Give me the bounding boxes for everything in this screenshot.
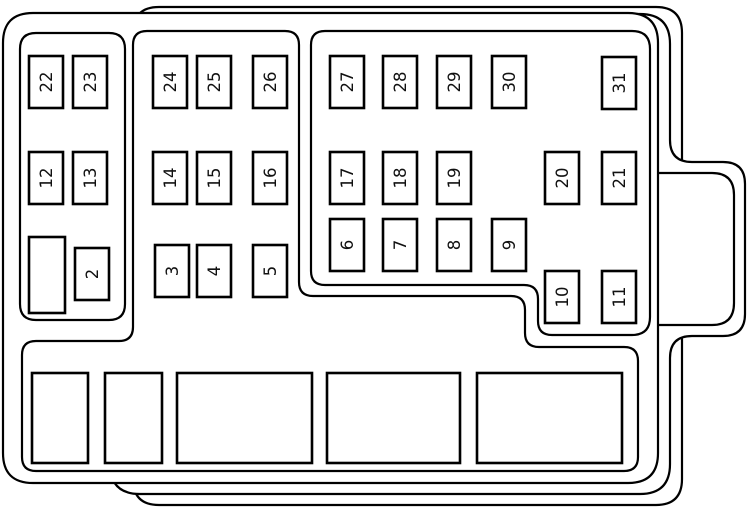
fuse-slot-25: 25 <box>197 56 231 108</box>
fuse-number-label: 28 <box>391 72 410 93</box>
fuse-number-label: 8 <box>445 240 464 251</box>
fuse-slot-31: 31 <box>602 57 636 109</box>
fuse-number-label: 16 <box>261 168 280 189</box>
fuse-slot-20: 20 <box>545 152 579 204</box>
fuse-box-diagram-canvas: 2345678910111213141516171819202122232425… <box>0 0 750 517</box>
fuse-number-label: 7 <box>391 240 410 251</box>
fuse-number-label: 2 <box>83 269 102 280</box>
fuse-number-label: 17 <box>338 168 357 189</box>
fuse-slot-14: 14 <box>153 152 187 204</box>
fuse-slot-8: 8 <box>437 219 471 271</box>
relay-slot-2 <box>105 373 162 463</box>
fuse-slot-30: 30 <box>492 56 526 108</box>
fuse-slot-6: 6 <box>330 219 364 271</box>
fuse-number-label: 23 <box>81 72 100 93</box>
fuse-slot-22: 22 <box>29 56 63 108</box>
fuse-number-label: 24 <box>161 72 180 93</box>
fuse-number-label: 21 <box>610 168 629 189</box>
fuse-slot-15: 15 <box>197 152 231 204</box>
fuse-number-label: 13 <box>81 168 100 189</box>
fuse-number-label: 15 <box>205 168 224 189</box>
fuse-number-label: 6 <box>338 240 357 251</box>
fuse-number-label: 12 <box>37 168 56 189</box>
relay-slot-5 <box>477 373 622 463</box>
fuse-number-label: 25 <box>205 72 224 93</box>
relay-slot-1 <box>32 373 88 463</box>
fuse-number-label: 22 <box>37 72 56 93</box>
fuse-slot-3: 3 <box>155 245 189 297</box>
fuse-slot-4: 4 <box>197 245 231 297</box>
fuse-number-label: 5 <box>261 266 280 277</box>
fuse-slot-11: 11 <box>602 271 636 323</box>
fuse-number-label: 11 <box>610 287 629 308</box>
fuse-slot-2: 2 <box>75 248 109 300</box>
fuse-number-label: 4 <box>205 266 224 277</box>
fuse-number-label: 27 <box>338 72 357 93</box>
fuse-slot-26: 26 <box>253 56 287 108</box>
relay-slots-group <box>32 373 622 463</box>
fuse-number-label: 9 <box>500 240 519 251</box>
fuse-box-diagram: 2345678910111213141516171819202122232425… <box>0 0 750 517</box>
fuse-number-label: 29 <box>445 72 464 93</box>
fuse-number-label: 26 <box>261 72 280 93</box>
relay-slot-3 <box>177 373 312 463</box>
fuse-number-label: 10 <box>553 287 572 308</box>
fuse-slot-9: 9 <box>492 219 526 271</box>
fuse-number-label: 18 <box>391 168 410 189</box>
fuse-slot-7: 7 <box>383 219 417 271</box>
fuse-slot-29: 29 <box>437 56 471 108</box>
fuse-slot-21: 21 <box>602 152 636 204</box>
fuse-slot-blank-1 <box>29 237 65 313</box>
fuse-slot-10: 10 <box>545 271 579 323</box>
relay-slot-4 <box>327 373 460 463</box>
fuse-number-label: 3 <box>163 266 182 277</box>
fuse-number-label: 20 <box>553 168 572 189</box>
fuse-number-label: 31 <box>610 73 629 94</box>
fuse-slot-24: 24 <box>153 56 187 108</box>
fuse-slot-16: 16 <box>253 152 287 204</box>
fuse-slot-28: 28 <box>383 56 417 108</box>
fuse-slot-13: 13 <box>73 152 107 204</box>
fuse-slot-19: 19 <box>437 152 471 204</box>
fuse-number-label: 14 <box>161 168 180 189</box>
fuse-slot-12: 12 <box>29 152 63 204</box>
fuse-number-label: 30 <box>500 72 519 93</box>
fuse-slot-5: 5 <box>253 245 287 297</box>
fuse-number-label: 19 <box>445 168 464 189</box>
fuse-slot-17: 17 <box>330 152 364 204</box>
fuse-slot-23: 23 <box>73 56 107 108</box>
fuse-slot-27: 27 <box>330 56 364 108</box>
fuse-slot-18: 18 <box>383 152 417 204</box>
